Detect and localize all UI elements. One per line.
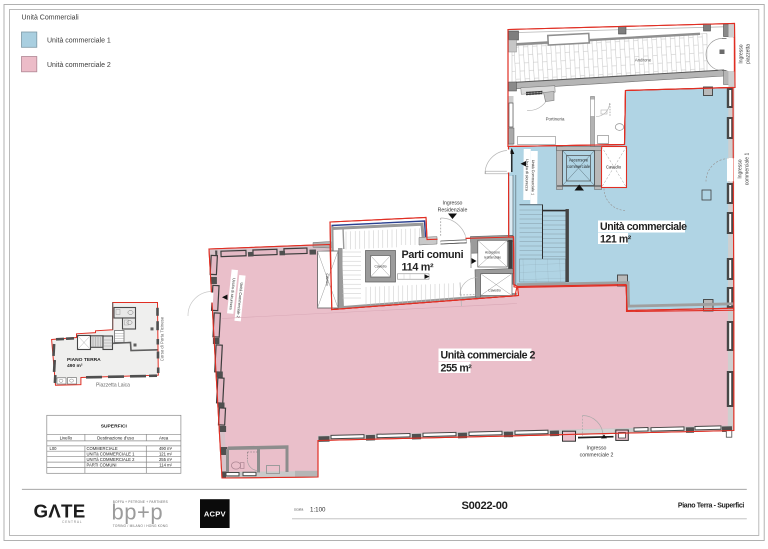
svg-text:490 m²: 490 m² [159, 446, 173, 451]
svg-text:TORINO / MILANO / HONG KONG: TORINO / MILANO / HONG KONG [113, 524, 168, 528]
svg-text:commerciale 1: commerciale 1 [745, 153, 751, 186]
svg-text:Parti comuni: Parti comuni [402, 249, 464, 261]
svg-text:commerciale: commerciale [567, 164, 591, 169]
svg-text:Unità commerciale 2: Unità commerciale 2 [47, 62, 111, 69]
svg-text:Ascensore: Ascensore [569, 158, 589, 163]
svg-text:Unità Commerciali: Unità Commerciali [22, 15, 80, 22]
svg-text:S0022-00: S0022-00 [461, 500, 507, 512]
svg-text:114 m²: 114 m² [402, 262, 435, 274]
svg-text:piazzetta: piazzetta [746, 44, 752, 64]
svg-text:Residenziale: Residenziale [438, 208, 468, 214]
svg-text:SUPERFICI: SUPERFICI [101, 424, 128, 430]
svg-text:Ascensore: Ascensore [485, 251, 500, 255]
svg-text:ACPV: ACPV [204, 509, 227, 518]
svg-text:residenziale: residenziale [484, 256, 501, 260]
svg-text:121 m²: 121 m² [600, 234, 632, 246]
svg-text:Piano Terra - Superfici: Piano Terra - Superfici [678, 502, 745, 509]
svg-text:commerciale 2: commerciale 2 [580, 453, 614, 459]
svg-text:UNITà COMMERCIALE 2: UNITà COMMERCIALE 2 [87, 457, 136, 462]
svg-text:Unità commerciale 2: Unità commerciale 2 [441, 350, 536, 362]
svg-text:1:100: 1:100 [310, 507, 326, 514]
svg-text:COMMERCIALE: COMMERCIALE [87, 446, 118, 451]
svg-text:Area: Area [159, 435, 169, 440]
svg-text:Cavedio: Cavedio [374, 265, 386, 269]
svg-text:Unità commerciale: Unità commerciale [600, 221, 687, 233]
svg-text:Destinazione d'uso: Destinazione d'uso [97, 435, 135, 440]
svg-text:Cavedio: Cavedio [325, 273, 329, 285]
svg-text:Unità Commerciale 1: Unità Commerciale 1 [531, 160, 535, 195]
svg-text:Ingresso: Ingresso [738, 159, 744, 178]
svg-text:scala: scala [294, 507, 304, 512]
svg-text:bp+p: bp+p [112, 500, 164, 525]
svg-text:114 m²: 114 m² [159, 463, 172, 468]
svg-text:Ingresso: Ingresso [443, 201, 463, 207]
svg-text:CENTRAL: CENTRAL [62, 520, 82, 524]
svg-text:Ingresso: Ingresso [739, 44, 745, 63]
svg-text:PARTI COMUNI: PARTI COMUNI [87, 463, 117, 468]
svg-text:Piazzetta Laica: Piazzetta Laica [96, 383, 130, 389]
svg-text:Cavedio: Cavedio [606, 165, 622, 170]
svg-text:UNITà COMMERCIALE 1: UNITà COMMERCIALE 1 [87, 452, 136, 457]
svg-text:Livello: Livello [60, 435, 73, 440]
svg-text:L00: L00 [50, 446, 58, 451]
svg-text:121 m²: 121 m² [159, 452, 173, 457]
svg-text:Corso di Porta Ticinese: Corso di Porta Ticinese [160, 316, 165, 361]
svg-text:255 m²: 255 m² [441, 363, 473, 375]
svg-text:Androne: Androne [635, 58, 652, 63]
svg-text:255 m²: 255 m² [159, 457, 173, 462]
svg-text:Ingresso: Ingresso [587, 446, 607, 452]
svg-text:490 m²: 490 m² [67, 363, 83, 369]
svg-text:Unità commerciale 1: Unità commerciale 1 [47, 38, 111, 45]
svg-text:Portineria: Portineria [546, 117, 565, 122]
svg-text:PIANO TERRA: PIANO TERRA [67, 357, 101, 363]
svg-text:Cavedio: Cavedio [488, 289, 501, 293]
svg-text:GΛTE: GΛTE [34, 501, 86, 522]
